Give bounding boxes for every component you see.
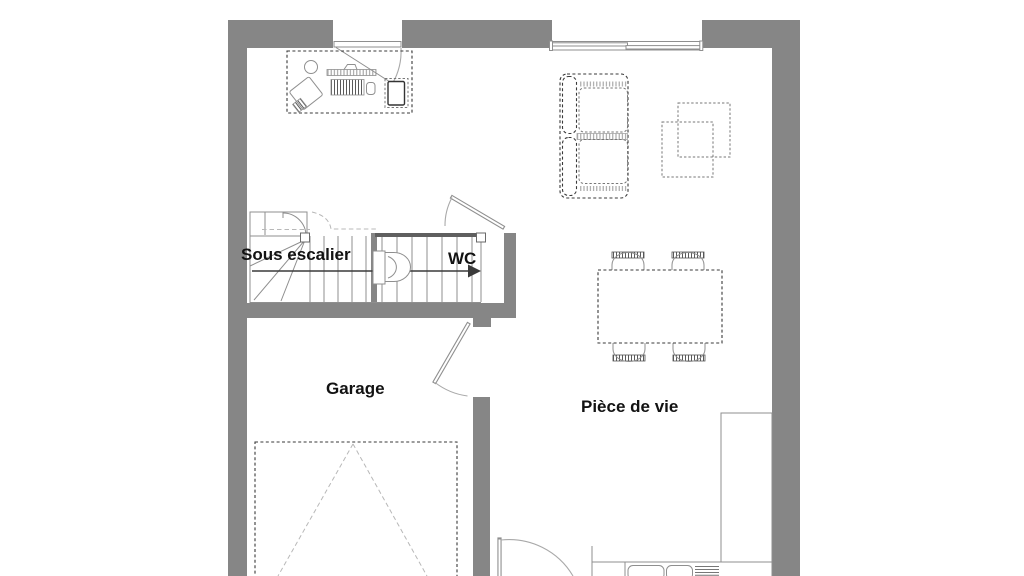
- window-pane-right: [626, 46, 701, 49]
- desk-plant: [305, 61, 318, 74]
- room-label-wc: WC: [448, 249, 476, 269]
- garage-access-door: [435, 325, 468, 397]
- stair-winder-dividers: [265, 212, 283, 235]
- dining-chairs-top: [612, 252, 704, 270]
- kitchen: [592, 413, 772, 576]
- sofa-mid-divider: [577, 134, 628, 140]
- garage-door-marking: [255, 442, 457, 576]
- sink-basin-right: [667, 566, 693, 576]
- monitor: [388, 82, 405, 106]
- wc-door: [445, 198, 503, 228]
- stair-newel-right: [477, 233, 486, 242]
- keyboard: [331, 80, 364, 96]
- wall-wc-east: [504, 233, 516, 318]
- room-label-piece-de-vie: Pièce de vie: [581, 397, 678, 417]
- stair-headroom-line: [262, 212, 377, 230]
- sofa-armrest-top: [580, 82, 628, 87]
- sofa-armrest-bottom: [580, 186, 628, 191]
- room-label-garage: Garage: [326, 379, 385, 399]
- window-endcap-left: [550, 41, 553, 51]
- wall-top-mid: [402, 20, 552, 48]
- window-sliding: [550, 41, 703, 51]
- desk-shelf-item: [344, 65, 357, 70]
- desk-shelf: [327, 70, 376, 76]
- garage-gate-outline: [255, 442, 457, 576]
- floor-plan: Sous escalier WC Garage Pièce de vie: [0, 0, 1024, 576]
- bottom-door: [500, 540, 574, 576]
- sink-basin-left: [628, 566, 664, 576]
- room-label-sous-escalier: Sous escalier: [241, 245, 351, 265]
- entrance-threshold: [334, 42, 401, 48]
- wc-door-leaf-inner: [453, 198, 503, 228]
- coffee-table-upper: [678, 103, 730, 157]
- window-pane-left: [553, 43, 628, 46]
- sofa-cushion-bottom: [579, 140, 628, 184]
- window-endcap-right: [700, 41, 703, 51]
- sofa-backrest-top: [563, 77, 577, 134]
- bottom-door-swing-arc: [501, 540, 573, 576]
- entrance-door: [334, 42, 401, 84]
- wall-garage-east: [473, 397, 490, 576]
- coffee-table-lower: [662, 122, 713, 177]
- toilet: [373, 251, 411, 284]
- toilet-tank: [373, 251, 385, 284]
- garage-door-leaf-inner: [435, 325, 468, 382]
- coffee-table: [662, 103, 730, 177]
- wall-garage-notch: [473, 318, 491, 327]
- wall-stair-south: [228, 303, 515, 318]
- dining-set: [598, 252, 722, 362]
- office-chair: [285, 77, 323, 114]
- entrance-door-leaf: [336, 48, 393, 84]
- wc-door-swing-arc: [445, 198, 452, 227]
- stair-newel-left: [301, 233, 310, 242]
- dining-table: [598, 270, 722, 343]
- wall-right: [772, 20, 800, 576]
- kitchen-counter-right: [721, 413, 772, 563]
- sofa: [560, 74, 628, 198]
- sofa-cushion-top: [579, 88, 628, 132]
- sofa-backrest-bottom: [563, 138, 577, 196]
- garage-door-swing-arc: [435, 383, 468, 397]
- floorplan-drawing: [0, 0, 1024, 576]
- garage-gate-swing-lines: [278, 444, 427, 576]
- wall-left: [228, 20, 247, 576]
- stair-top-edge: [375, 233, 482, 237]
- office-desk: [285, 51, 412, 113]
- dining-chairs-bottom: [613, 343, 705, 362]
- mouse: [367, 83, 376, 95]
